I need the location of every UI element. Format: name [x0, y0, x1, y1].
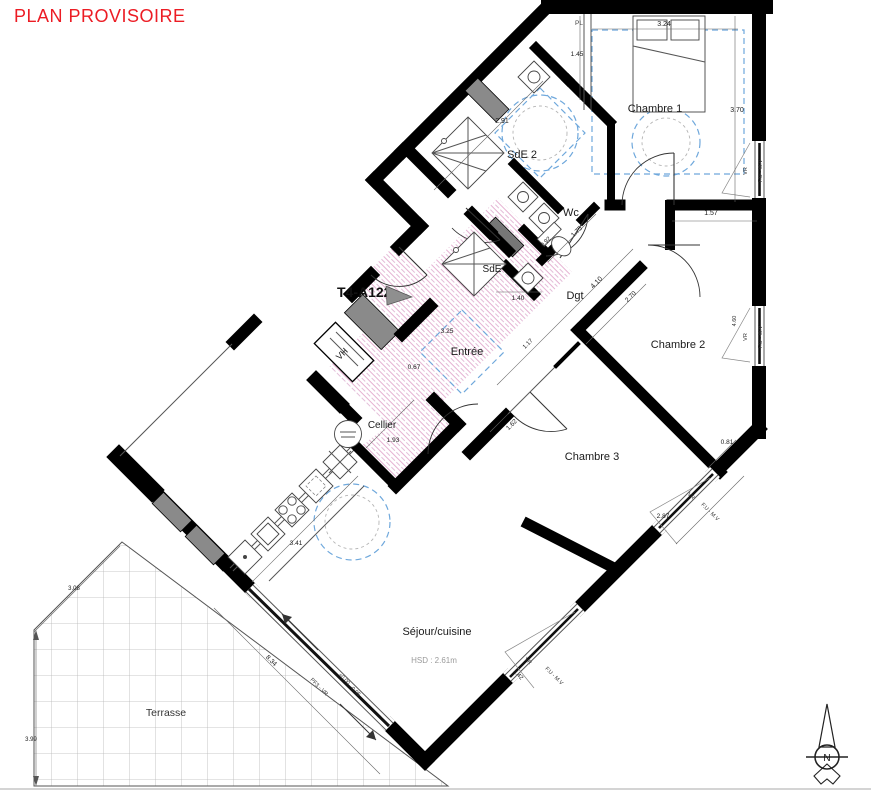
- dimension-lines: [214, 16, 757, 774]
- room-label-dgt: Dgt: [566, 290, 583, 302]
- bed: [633, 16, 705, 112]
- closet-label-pl: PL: [575, 20, 583, 27]
- window1-type: F.U - M.V: [758, 159, 764, 182]
- room-label-terrasse: Terrasse: [146, 707, 186, 719]
- window2-type: F.U - M.V: [758, 325, 764, 348]
- floor-plan-drawing: T4-A122 N Chambre 1Chambre 2Chambre 3SdE…: [0, 0, 871, 800]
- kitchen-unit-reserve: [299, 469, 333, 503]
- window2-dim: 4.60: [732, 316, 738, 327]
- dim-1-45: 1.45: [571, 51, 584, 58]
- dim-3-70: 3.70: [730, 107, 744, 114]
- room-label-chambre1: Chambre 1: [628, 103, 682, 115]
- kitchen-counter: [228, 445, 364, 581]
- window2-shutter: VR: [743, 333, 749, 341]
- dim-4-10: 4.10: [590, 276, 605, 291]
- dim-2-70: 2.70: [624, 290, 638, 304]
- room-label-chambre2: Chambre 2: [651, 339, 705, 351]
- room-label-sde: SdE: [483, 264, 502, 275]
- dim-1-93: 1.93: [387, 437, 400, 444]
- window1-shutter: VR: [743, 167, 749, 175]
- room-label-cellier: Cellier: [368, 420, 397, 431]
- dim-2-91: 2.91: [495, 118, 509, 125]
- dim-2-87: 2.87: [657, 513, 670, 520]
- room-label-entree: Entrée: [451, 346, 483, 358]
- water-heater: [335, 421, 362, 448]
- dim-1-75: 1.75: [570, 225, 584, 239]
- washbasin-sde2-top: [518, 61, 550, 93]
- dim-0-67: 0.67: [408, 364, 421, 371]
- dim-3-25: 3.25: [441, 328, 454, 335]
- dim-3-41: 3.41: [290, 540, 303, 547]
- dim-3-99: 3.99: [25, 737, 37, 743]
- plan-status-title: PLAN PROVISOIRE: [14, 6, 186, 27]
- room-label-sde2: SdE 2: [507, 149, 537, 161]
- dim-3-24: 3.24: [657, 21, 671, 28]
- window4-type: F.U - M.V: [543, 666, 564, 687]
- dim-3-08: 3.08: [68, 586, 80, 592]
- compass-north-label: N: [823, 753, 830, 764]
- door-chambre3: [514, 392, 567, 432]
- door-chambre2: [648, 245, 700, 297]
- ceiling-height-note: HSD : 2.61m: [411, 656, 457, 665]
- floor-plan-page: PLAN PROVISOIRE: [0, 0, 871, 800]
- room-label-sejour: Séjour/cuisine: [402, 626, 471, 638]
- north-compass-icon: N: [806, 704, 848, 784]
- dim-1-40: 1.40: [512, 295, 525, 302]
- property-line: [120, 344, 232, 456]
- unit-number-label: T4-A122: [337, 284, 392, 300]
- door-chambre1: [622, 153, 674, 205]
- dim-0-81: 0.81: [721, 439, 734, 446]
- window3-type: F.U - M.V: [699, 502, 720, 523]
- dim-1-57: 1.57: [704, 210, 718, 217]
- room-label-wc: Wc: [563, 207, 579, 219]
- room-label-chambre3: Chambre 3: [565, 451, 619, 463]
